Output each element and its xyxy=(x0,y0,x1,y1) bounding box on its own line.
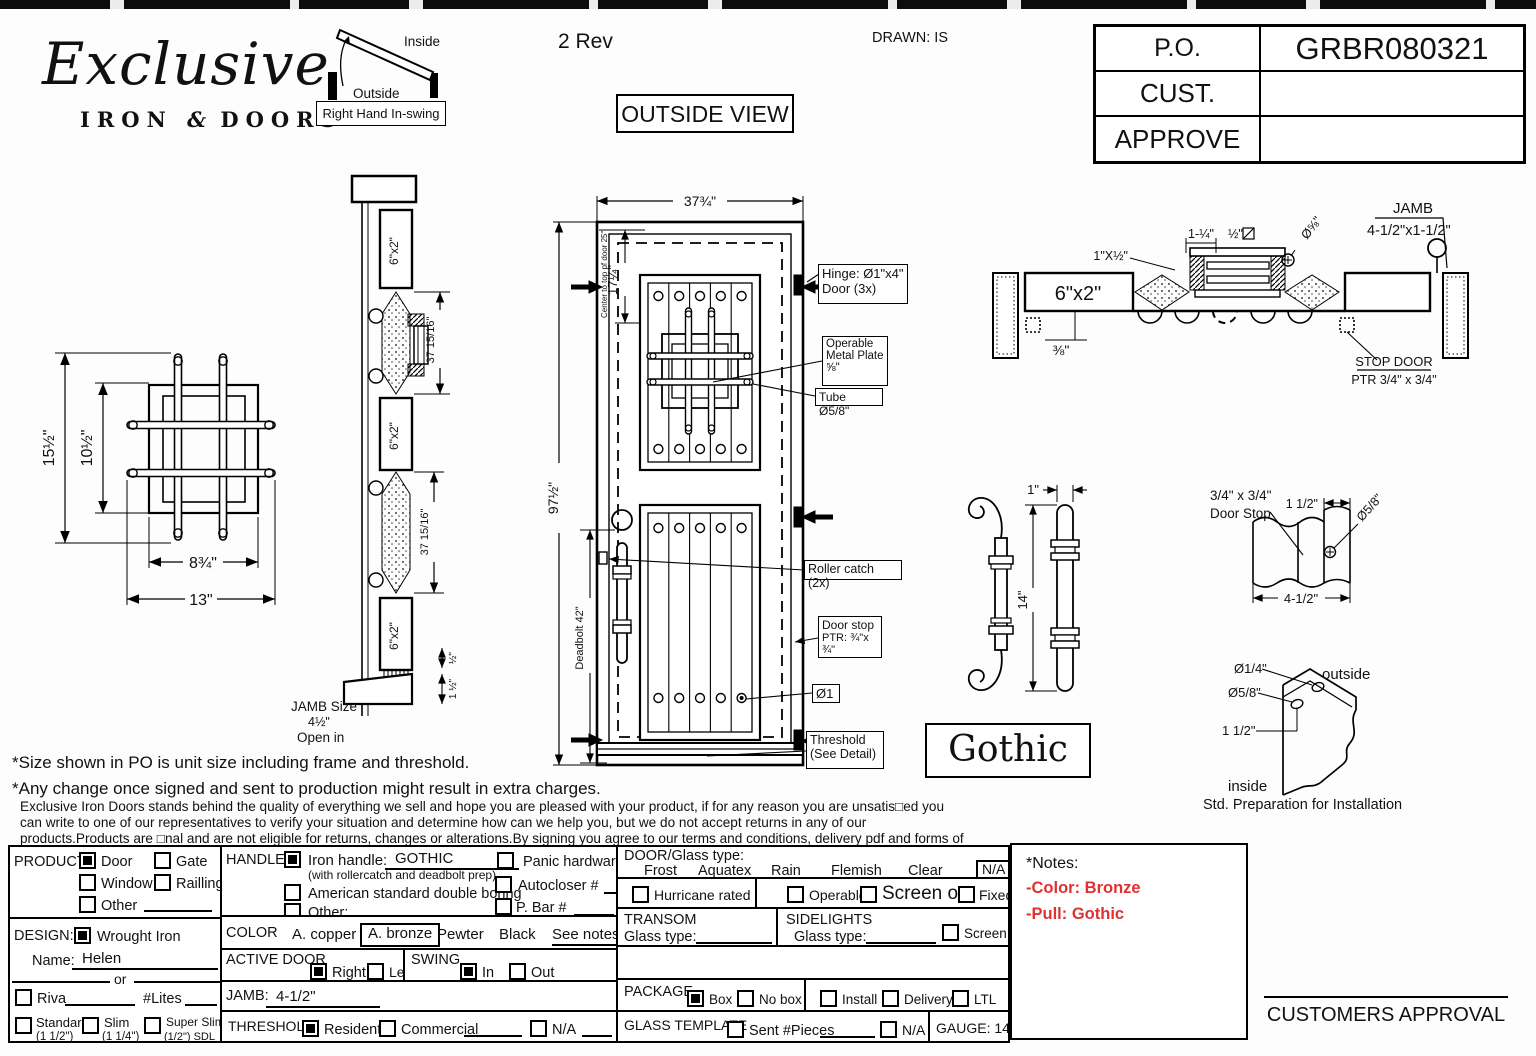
door-dim-height: 97½" xyxy=(545,482,561,514)
swing-arc xyxy=(341,40,346,86)
fixed-label: Fixed xyxy=(979,888,1013,904)
door-dim-width: 37¾" xyxy=(684,193,716,209)
prep-inside-label: inside xyxy=(1228,778,1267,795)
callout-threshold-line1: Threshold xyxy=(810,733,880,747)
logo-subtitle: IRON & DOORS xyxy=(80,108,343,132)
product-gate-checkbox[interactable] xyxy=(154,852,171,869)
jamb-cell: JAMB: 4-1/2" xyxy=(220,980,618,1012)
jamb-size-value: 4½" xyxy=(308,715,330,729)
grille-dim-15: 15½" xyxy=(41,430,58,467)
callout-roller: Roller catch (2x) xyxy=(804,560,902,580)
delivery-cell: Install Delivery LTL xyxy=(804,978,1010,1012)
operable-label: Operable xyxy=(809,888,867,904)
design-lites-blank[interactable] xyxy=(185,993,217,1006)
threshold-commercial-checkbox[interactable] xyxy=(379,1020,396,1037)
threshold-commercial-blank[interactable] xyxy=(464,1024,522,1037)
sidelights-screen-checkbox[interactable] xyxy=(942,924,959,941)
transom-cell: TRANSOM Glass type: xyxy=(616,907,778,947)
design-or-label: or xyxy=(114,972,126,988)
callout-tube: Tube Ø5/8" xyxy=(815,388,883,406)
design-name-field[interactable]: Helen xyxy=(72,950,218,970)
callout-hinge-line2: Door (3x) xyxy=(822,281,904,296)
grille-dim-10: 10½" xyxy=(79,430,96,467)
stop-detail-label2: Door Stop xyxy=(1210,506,1271,521)
color-bronze-option[interactable]: A. bronze xyxy=(360,923,440,947)
glass-template-cell: GLASS TEMPLATE Sent #Pieces N/A xyxy=(616,1010,930,1043)
spec-sheet: Exclusive IRON & DOORS Inside Outside Ri… xyxy=(0,0,1536,1056)
swing-left-jamb xyxy=(328,72,337,100)
design-cell: DESIGN: Wrought Iron Name: Helen or Riva… xyxy=(8,917,222,1043)
callout-dia1: Ø1 xyxy=(812,684,840,703)
design-standard-sub: (1 1/2") xyxy=(36,1031,73,1044)
prep-caption: Std. Preparation for Installation xyxy=(1203,797,1402,813)
cust-value[interactable] xyxy=(1261,72,1523,115)
hsection-dim-1x12: 1"X½" xyxy=(1093,249,1128,263)
swing-cell: SWING In Out xyxy=(403,948,618,982)
callout-dia1-line: Ø1 xyxy=(816,686,836,701)
active-right-label: Right xyxy=(332,965,366,981)
handle-pbar-label: P. Bar # xyxy=(516,900,567,916)
operable-checkbox[interactable] xyxy=(787,886,804,903)
hsection-jamb-size: 4-1/2"x1-1/2" xyxy=(1367,223,1451,239)
threshold-na-label: N/A xyxy=(552,1022,576,1038)
color-label: COLOR xyxy=(226,925,278,941)
vsection-tube-label-3: 6"x2" xyxy=(387,622,401,650)
swing-type-box: Right Hand In-swing xyxy=(316,101,446,126)
handle-iron-checkbox[interactable] xyxy=(284,851,301,868)
prep-dim112: 1 1/2" xyxy=(1222,723,1256,738)
product-other-blank[interactable] xyxy=(144,899,212,912)
screen-or-label: Screen or xyxy=(882,883,964,904)
product-label: PRODUCT: xyxy=(14,854,88,870)
approve-row: APPROVE xyxy=(1096,115,1523,161)
handle-detail-drawing: 1" 14" xyxy=(945,460,1095,710)
design-standard-checkbox[interactable] xyxy=(15,1017,32,1034)
design-superslim-sub: (1/2") SDL xyxy=(164,1031,215,1043)
handle-pbar-checkbox[interactable] xyxy=(495,898,512,915)
logo-iron: IRON xyxy=(80,107,173,132)
design-lites-label: #Lites xyxy=(143,991,182,1007)
threshold-cell: THRESHOLD Residential Commercial N/A xyxy=(220,1010,618,1043)
jamb-size-label: JAMB Size xyxy=(291,699,357,714)
fixed-checkbox[interactable] xyxy=(958,886,975,903)
product-gate-label: Gate xyxy=(176,854,207,870)
color-black-option[interactable]: Black xyxy=(499,927,536,944)
prep-detail-drawing: Ø1/4" Ø5/8" 1 1/2" outside inside xyxy=(1200,655,1410,795)
design-slim-label: Slim xyxy=(104,1016,129,1031)
side-note-color: -Color: Bronze xyxy=(1026,879,1141,897)
swing-in-label: In xyxy=(482,965,494,981)
po-table: P.O. GRBR080321 CUST. APPROVE xyxy=(1093,24,1526,164)
prep-outside-label: outside xyxy=(1322,666,1370,683)
callout-hinge-line1: Hinge: Ø1"x4" xyxy=(822,266,904,281)
callout-doorstop: Door stop PTR: ¾"x ¾" xyxy=(818,616,882,658)
product-door-checkbox[interactable] xyxy=(79,852,96,869)
side-notes-title: *Notes: xyxy=(1026,855,1078,873)
handle-style-label: Gothic xyxy=(948,729,1068,770)
design-riva-blank[interactable] xyxy=(65,993,135,1006)
vsection-dim-lower: 37 15/16" xyxy=(419,509,431,556)
approve-value[interactable] xyxy=(1261,117,1523,161)
hsection-stop-door: STOP DOOR xyxy=(1355,354,1433,369)
callout-tube-line: Tube Ø5/8" xyxy=(819,390,879,418)
empty-cell xyxy=(616,945,1010,980)
swing-outside-label: Outside xyxy=(353,86,400,101)
swing-label: SWING xyxy=(411,952,460,968)
vsection-tube-label-1: 6"x2" xyxy=(387,237,401,265)
design-wrought-checkbox[interactable] xyxy=(74,927,91,944)
outside-view-box: OUTSIDE VIEW xyxy=(616,94,794,133)
operable-cell: Operable Screen or Fixed xyxy=(755,877,1010,909)
handle-label: HANDLE xyxy=(226,852,285,868)
door-center-note: Center to top pf door 25" xyxy=(600,231,609,319)
delivery-checkbox[interactable] xyxy=(882,990,899,1007)
design-label: DESIGN: xyxy=(14,928,74,944)
package-nobox-checkbox[interactable] xyxy=(737,990,754,1007)
package-nobox-label: No box xyxy=(759,992,802,1007)
design-slim-sub: (1 1/4") xyxy=(102,1031,139,1044)
hsection-dim-38: ⅜" xyxy=(1053,342,1070,358)
doorstop-profile-drawing: 3/4" x 3/4" Door Stop 1 1/2" Ø5/8" 4-1/2… xyxy=(1200,470,1400,615)
active-door-cell: ACTIVE DOOR Right Left xyxy=(220,948,405,982)
drawn-label: DRAWN: IS xyxy=(872,30,948,46)
vsection-dim-upper: 37 15/16" xyxy=(425,317,437,364)
callout-threshold-line2: (See Detail) xyxy=(810,747,880,761)
design-name-label: Name: xyxy=(32,953,75,969)
hsection-jamb-title: JAMB xyxy=(1393,200,1433,217)
order-form: PRODUCT: Door Gate Window Railling Other… xyxy=(8,845,1010,1043)
product-other-label: Other xyxy=(101,898,137,914)
product-window-label: Window xyxy=(101,876,153,892)
swing-out-label: Out xyxy=(531,965,554,981)
handle-autocloser-label: Autocloser # xyxy=(518,878,599,894)
product-other-checkbox[interactable] xyxy=(79,896,96,913)
hurricane-checkbox[interactable] xyxy=(632,886,649,903)
stop-detail-dia: Ø5/8" xyxy=(1354,491,1386,524)
note-changes: *Any change once signed and sent to prod… xyxy=(12,779,601,798)
product-window-checkbox[interactable] xyxy=(79,874,96,891)
callout-plate-line1: Operable xyxy=(826,338,884,350)
color-copper-option[interactable]: A. copper xyxy=(292,927,356,944)
callout-plate: Operable Metal Plate ⅝" xyxy=(822,336,888,386)
hsection-dim-114: 1-¼" xyxy=(1188,227,1214,241)
screen-checkbox[interactable] xyxy=(860,886,877,903)
package-label: PACKAGE xyxy=(624,984,693,1000)
transom-label: TRANSOM xyxy=(624,912,697,928)
handle-iron-sub: (with rollercatch and deadbolt prep) xyxy=(308,869,496,882)
door-elevation-drawing: 37¾" 97½" 17¼" Center to top pf door 25"… xyxy=(545,168,910,780)
product-door-label: Door xyxy=(101,854,132,870)
door-glass-cell: DOOR/Glass type: Frost Aquatex Rain Flem… xyxy=(616,845,1010,879)
jamb-open-label: Open in xyxy=(297,730,344,745)
or-rule-right xyxy=(134,981,220,983)
template-na-checkbox[interactable] xyxy=(880,1021,897,1038)
handle-dim-14: 14" xyxy=(1015,590,1030,609)
horizontal-section-drawing: JAMB 4-1/2"x1-1/2" 6"x2" ⅜" 1"X½" 1-¼" ½… xyxy=(985,198,1500,428)
gauge-label: GAUGE: 14 xyxy=(936,1021,1010,1037)
swing-type-label: Right Hand In-swing xyxy=(322,106,439,121)
package-box-label: Box xyxy=(709,992,732,1007)
scan-artifact-strip xyxy=(0,0,1536,9)
prep-dia14: Ø1/4" xyxy=(1234,661,1267,676)
rev-label: 2 Rev xyxy=(558,30,613,54)
design-wrought-label: Wrought Iron xyxy=(97,929,181,945)
install-label: Install xyxy=(842,992,877,1007)
handle-dim-1: 1" xyxy=(1027,482,1039,497)
handle-panic-checkbox[interactable] xyxy=(497,852,514,869)
ltl-label: LTL xyxy=(974,992,996,1007)
note-size: *Size shown in PO is unit size including… xyxy=(12,753,469,772)
prep-dia58: Ø5/8" xyxy=(1228,685,1261,700)
handle-panic-label: Panic hardware xyxy=(523,854,624,870)
hsection-tube-label: 6"x2" xyxy=(1055,283,1101,305)
package-box-checkbox[interactable] xyxy=(687,990,704,1007)
logo-script: Exclusive xyxy=(42,32,330,97)
jamb-value[interactable]: 4-1/2" xyxy=(266,988,380,1008)
sidelights-screen-label: Screen xyxy=(964,926,1007,941)
approve-label: APPROVE xyxy=(1096,117,1261,161)
outside-view-label: OUTSIDE VIEW xyxy=(621,101,788,127)
callout-roller-line: Roller catch (2x) xyxy=(808,562,898,590)
hsection-dim-12: ½" xyxy=(1228,227,1243,241)
handle-american-label: American standard double boring xyxy=(308,886,522,902)
jamb-label: JAMB: xyxy=(226,988,269,1004)
vsection-tube-label-2: 6"x2" xyxy=(387,422,401,450)
design-superslim-checkbox[interactable] xyxy=(144,1017,161,1034)
design-riva-checkbox[interactable] xyxy=(15,989,32,1006)
handle-style-box: Gothic xyxy=(925,723,1091,778)
hurricane-cell: Hurricane rated xyxy=(616,877,757,909)
color-pewter-option[interactable]: Pewter xyxy=(437,927,484,944)
callout-plate-line3: ⅝" xyxy=(826,362,884,374)
delivery-label: Delivery xyxy=(904,992,953,1007)
sidelights-glass-label: Glass type: xyxy=(794,929,867,945)
cust-label: CUST. xyxy=(1096,72,1261,115)
gauge-cell: GAUGE: 14 xyxy=(928,1010,1010,1043)
vsection-dim-one-half: 1 ½" xyxy=(448,678,459,699)
door-glass-label: DOOR/Glass type: xyxy=(624,848,744,864)
callout-hinge: Hinge: Ø1"x4" Door (3x) xyxy=(818,264,908,304)
callout-doorstop-line1: Door stop xyxy=(822,618,878,632)
sidelights-glass-blank[interactable] xyxy=(866,931,936,944)
active-right-checkbox[interactable] xyxy=(310,963,327,980)
install-checkbox[interactable] xyxy=(820,990,837,1007)
product-railing-label: Railling xyxy=(176,876,224,892)
callout-plate-line2: Metal Plate xyxy=(826,350,884,362)
grille-dim-13: 13" xyxy=(189,592,212,609)
handle-american-checkbox[interactable] xyxy=(284,884,301,901)
hsection-dia-58: Ø⅝" xyxy=(1298,214,1324,242)
side-note-pull: -Pull: Gothic xyxy=(1026,905,1124,923)
ltl-checkbox[interactable] xyxy=(952,990,969,1007)
approval-signature-line[interactable] xyxy=(1264,996,1508,998)
threshold-na-blank[interactable] xyxy=(582,1024,612,1037)
template-sent-checkbox[interactable] xyxy=(727,1021,744,1038)
template-na-label: N/A xyxy=(902,1023,925,1039)
sidelights-cell: SIDELIGHTS Glass type: Screen xyxy=(776,907,1010,947)
door-deadbolt-note: Deadbolt 42" xyxy=(574,606,586,669)
package-cell: PACKAGE Box No box xyxy=(616,978,806,1012)
design-standard-label: Standard xyxy=(36,1016,89,1031)
template-sent-blank[interactable] xyxy=(820,1025,875,1038)
grille-dim-8: 8¾" xyxy=(189,555,217,572)
design-superslim-label: Super Slim xyxy=(166,1016,225,1029)
product-railing-checkbox[interactable] xyxy=(154,874,171,891)
transom-glass-blank[interactable] xyxy=(696,931,772,944)
sidelights-label: SIDELIGHTS xyxy=(786,912,872,928)
callout-threshold: Threshold (See Detail) xyxy=(806,731,884,769)
design-slim-checkbox[interactable] xyxy=(82,1017,99,1034)
active-left-checkbox[interactable] xyxy=(367,963,384,980)
cust-row: CUST. xyxy=(1096,70,1523,115)
design-riva-label: Riva xyxy=(37,991,66,1007)
stop-detail-label1: 3/4" x 3/4" xyxy=(1210,488,1272,503)
swing-inside-label: Inside xyxy=(404,34,440,49)
vsection-dim-half: ½" xyxy=(448,652,459,664)
product-cell: PRODUCT: Door Gate Window Railling Other xyxy=(8,845,222,919)
threshold-na-checkbox[interactable] xyxy=(530,1020,547,1037)
threshold-residential-checkbox[interactable] xyxy=(302,1020,319,1037)
approval-label: CUSTOMERS APPROVAL xyxy=(1264,1004,1508,1026)
or-rule-left xyxy=(12,981,110,983)
po-value[interactable]: GRBR080321 xyxy=(1261,27,1523,70)
handle-autocloser-checkbox[interactable] xyxy=(495,876,512,893)
logo-ampersand-icon: & xyxy=(187,107,206,132)
stop-detail-dim412: 4-1/2" xyxy=(1284,591,1319,606)
transom-glass-label: Glass type: xyxy=(624,929,697,945)
grille-detail-drawing: 15½" 10½" 8¾" 13" xyxy=(40,330,300,620)
stop-detail-dim112: 1 1/2" xyxy=(1286,497,1318,511)
color-cell: COLOR A. copper A. bronze Pewter Black S… xyxy=(220,915,618,950)
swing-in-checkbox[interactable] xyxy=(460,963,477,980)
color-see-notes[interactable]: See notes* xyxy=(552,927,625,946)
callout-doorstop-line2: PTR: ¾"x ¾" xyxy=(822,632,878,656)
side-notes-box: *Notes: -Color: Bronze -Pull: Gothic xyxy=(1010,843,1248,1040)
po-row: P.O. GRBR080321 xyxy=(1096,27,1523,70)
po-label: P.O. xyxy=(1096,27,1261,70)
swing-out-checkbox[interactable] xyxy=(509,963,526,980)
handle-cell: HANDLE Iron handle: GOTHIC (with rollerc… xyxy=(220,845,618,917)
vertical-section-drawing: 6"x2" 6"x2" 6"x2" 37 15/16" 37 15/16" ½"… xyxy=(338,168,478,758)
hurricane-label: Hurricane rated xyxy=(654,888,751,904)
hsection-stop-ptr: PTR 3/4" x 3/4" xyxy=(1351,373,1436,387)
